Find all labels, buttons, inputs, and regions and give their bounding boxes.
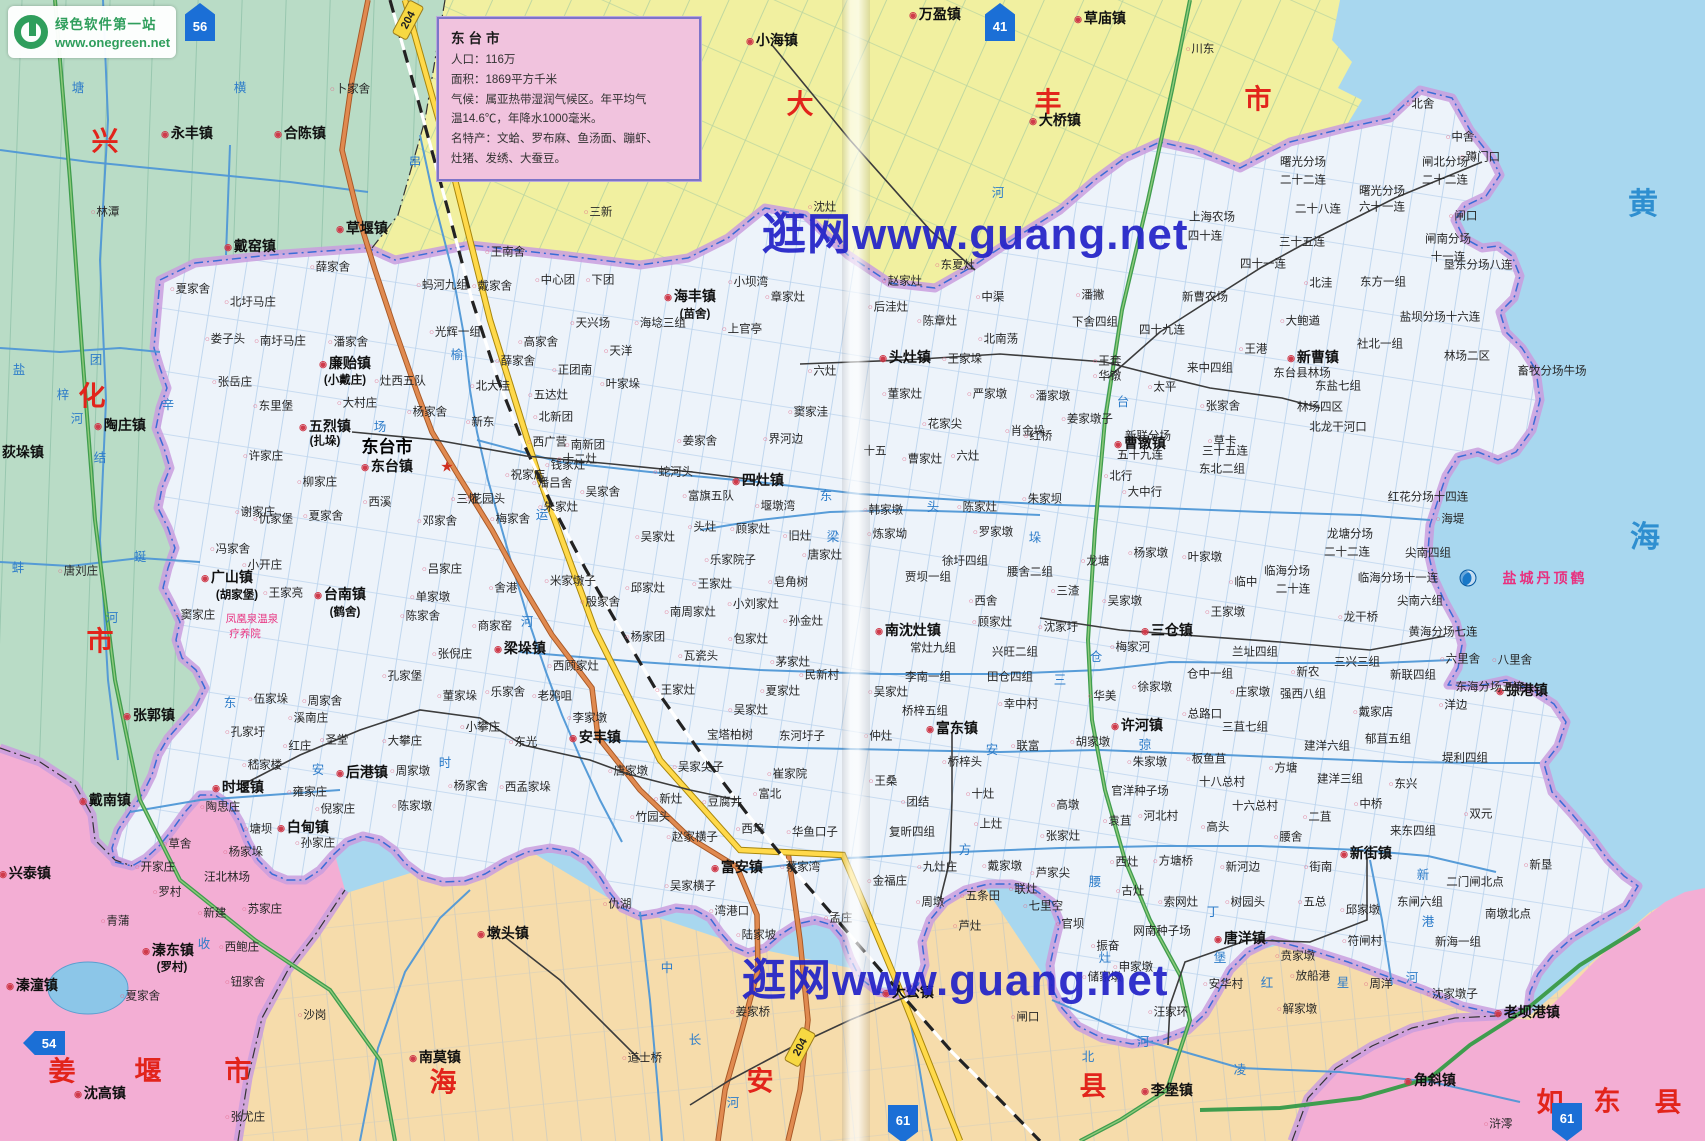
info-line: 面积：1869平方千米 xyxy=(451,71,689,91)
site-logo: 绿色软件第一站 www.onegreen.net xyxy=(8,6,176,58)
info-line: 温14.6℃，年降水1000毫米。 xyxy=(451,110,689,130)
info-box: 东台市 人口：116万面积：1869平方千米气候：属亚热带湿润气候区。年平均气 … xyxy=(437,17,701,181)
info-line: 人口：116万 xyxy=(451,51,689,71)
map-canvas: 兴化市大丰市姜堰市海安县如东县黄海东台市东台镇★永丰镇合陈镇小海镇万盈镇草庙镇大… xyxy=(0,0,1705,1141)
watermark-layer: 逛网www.guang.net逛网www.guang.net xyxy=(0,0,1705,1141)
info-line: 气候：属亚热带湿润气候区。年平均气 xyxy=(451,91,689,111)
watermark: 逛网www.guang.net xyxy=(762,198,1188,262)
info-lines: 人口：116万面积：1869平方千米气候：属亚热带湿润气候区。年平均气 温14.… xyxy=(451,51,689,170)
info-line: 名特产：文蛤、罗布麻、鱼汤面、蹦虾、 xyxy=(451,130,689,150)
watermark: 逛网www.guang.net xyxy=(742,944,1168,1008)
logo-url: www.onegreen.net xyxy=(55,35,170,50)
info-line: 灶猪、发绣、大蚕豆。 xyxy=(451,150,689,170)
onegreen-logo-icon xyxy=(14,15,48,49)
info-box-title: 东台市 xyxy=(451,27,689,47)
logo-title: 绿色软件第一站 xyxy=(55,17,157,32)
